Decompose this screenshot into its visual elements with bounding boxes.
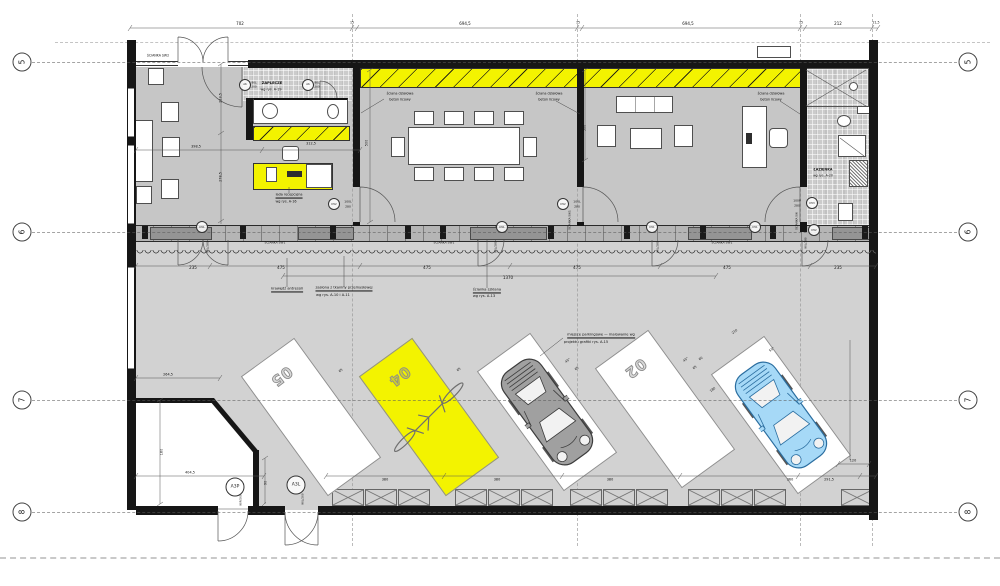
annotation-label: wg rys. A-13 [473, 295, 495, 299]
grid-bubble-6: 6 [959, 223, 978, 242]
annotation-label: 694,5 [459, 22, 470, 26]
annotation-label: 21,5 [872, 21, 879, 24]
grid-row-line-6 [32, 232, 962, 233]
grid-bubble-label: 8 [18, 510, 27, 515]
grid-bubble-8: 8 [959, 503, 978, 522]
annotation-label: 1370 [503, 276, 513, 280]
grid-row-line-5 [32, 62, 962, 63]
door-tag-d52: D52 [328, 198, 340, 210]
annotation-label: beton licowy [760, 98, 781, 101]
annotation-label: 702 [236, 22, 244, 26]
annotation-label: beton licowy [538, 98, 559, 101]
annotation-label: 100L [573, 200, 580, 203]
annotation-label: 90 [264, 481, 267, 485]
annotation-label: ŚCIANKA SW1 [569, 210, 572, 229]
grid-bubble-5: 5 [959, 53, 978, 72]
grid-bubble-7: 7 [959, 391, 978, 410]
annotation-label: 360 [787, 478, 793, 481]
annotation-label: krawędź antresoli [271, 287, 303, 292]
annotation-label: zasłona z tkaniny przemysłowej [315, 286, 372, 291]
door-tag-d51: D51 [196, 221, 208, 233]
grid-bubble-6: 6 [13, 223, 32, 242]
annotation-label: 380 [382, 478, 388, 481]
grid-bubble-label: 5 [18, 60, 27, 65]
door-tag-d51: D51 [496, 221, 508, 233]
floor-plan: 70215694,515694,51521221,5ŚCIANKA SW2ZAP… [0, 0, 1000, 586]
annotation-label: ŚCIANKA SW [796, 212, 799, 230]
door-tag-a3l: A3L [287, 476, 306, 495]
annotation-label: 90L/200 [302, 493, 305, 504]
annotation-label: 223,5 [219, 93, 222, 103]
door-tag-a3p: A3P [226, 478, 245, 497]
annotation-label: 120 [850, 459, 856, 462]
annotation-label: lada recepcyjna [276, 194, 303, 199]
annotation-label: ŁAZIENKA [814, 168, 833, 171]
annotation-label: beton licowy [389, 98, 410, 101]
annotation-label: 291,5 [824, 478, 834, 481]
annotation-label: 235 [189, 266, 197, 270]
grid-bubble-label: 6 [964, 230, 973, 235]
annotation-label: 15 [576, 21, 580, 24]
door-tag-a6: A6 [239, 79, 251, 91]
grid-bubble-5: 5 [13, 53, 32, 72]
grid-bubble-label: 6 [18, 230, 27, 235]
annotation-label: 200 [314, 86, 319, 89]
annotation-label: 404,5 [185, 471, 195, 474]
grid-bubble-label: 7 [964, 398, 973, 403]
annotation-label: 475 [423, 266, 431, 270]
annotation-label: ZAPLECZE [262, 82, 282, 86]
annotation-label: ściana działowa [758, 92, 785, 95]
annotation-label: ŚCIANKA SW1 [712, 242, 733, 245]
annotation-label: ŚCIANKA SW2 [147, 54, 169, 57]
annotation-label: 90P/200 [240, 494, 243, 506]
grid-bubble-8: 8 [13, 503, 32, 522]
annotation-label: 235 [834, 266, 842, 270]
annotation-label: 15 [799, 21, 803, 24]
annotation-label: 380 [494, 478, 500, 481]
fixture-detail-lines [806, 70, 866, 156]
annotation-label: ŚCIANKA SW1 [434, 242, 455, 245]
annotation-label: ściana działowa [536, 92, 563, 95]
annotation-label: 475 [277, 266, 285, 270]
door-tag-a6: A6 [302, 79, 314, 91]
annotation-label: 180 [160, 449, 163, 455]
annotation-label: ŚCIANKA SW1 [265, 242, 286, 245]
annotation-label: 398,5 [191, 145, 201, 148]
annotation-label: 200 [251, 86, 256, 89]
door-tag-d51: D51 [646, 221, 658, 233]
annotation-label: 280 [345, 205, 351, 208]
grid-bubble-7: 7 [13, 391, 32, 410]
annotation-label: wg rys. A-19 [260, 88, 281, 91]
grid-bubble-label: 5 [964, 60, 973, 65]
annotation-label: 280 [794, 204, 800, 207]
annotation-label: 90L/280 [657, 241, 660, 252]
grid-bubble-label: 8 [964, 510, 973, 515]
annotation-label: 100P [793, 199, 801, 202]
door-tag-d52: D52 [808, 224, 820, 236]
annotation-label: 100L [344, 200, 351, 203]
annotation-label: 475 [723, 266, 731, 270]
grid-row-line-7 [32, 400, 962, 401]
annotation-label: 90L/280 [805, 237, 808, 248]
grid-bubble-label: 7 [18, 398, 27, 403]
annotation-label: wg rys. A-10 i A-11 [316, 294, 350, 298]
door-tag-d51: D51 [749, 221, 761, 233]
annotation-label: wg rys. A-20 [813, 174, 833, 177]
annotation-label: 264,5 [163, 373, 173, 376]
annotation-label: miejsce parkingowe — malowanie wg [567, 333, 635, 338]
annotation-label: ścianka szklana [473, 288, 501, 293]
annotation-label: 312,5 [306, 142, 316, 145]
annotation-label: 694,5 [682, 22, 693, 26]
annotation-label: wg rys. A-16 [275, 200, 296, 203]
annotation-label: ściana działowa [387, 92, 414, 95]
annotation-label: 90L/280 [495, 241, 498, 252]
annotation-label: 380 [607, 478, 613, 481]
door-tag-d53: D53 [806, 197, 818, 209]
annotation-label: projektu grafiki rys. A-15 [564, 341, 608, 345]
annotation-label: 475 [573, 266, 581, 270]
annotation-label: 500 [583, 125, 586, 131]
grid-row-line-8 [32, 512, 962, 513]
annotation-label: 278,5 [219, 172, 222, 182]
annotation-label: 280 [574, 205, 580, 208]
leader-lines [287, 99, 800, 356]
annotation-label: 90L/280 [207, 241, 210, 252]
annotation-label: 500 [365, 140, 368, 146]
door-tag-d52: D52 [557, 198, 569, 210]
annotation-label: 212 [834, 22, 842, 26]
annotation-label: 15 [350, 21, 354, 24]
